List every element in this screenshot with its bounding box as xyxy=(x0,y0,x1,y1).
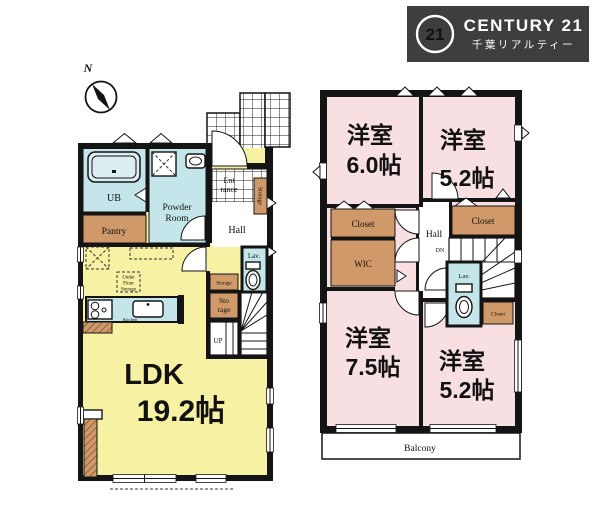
closet-left-label: Closet xyxy=(351,219,375,229)
hall-1f-label: Hall xyxy=(228,225,245,236)
floorplan-second-floor: 洋室 6.0帖 洋室 5.2帖 Closet WIC Hall DN Close… xyxy=(308,78,548,470)
floorplan-canvas: 21 CENTURY 21 千葉リアルティー N xyxy=(0,0,600,524)
kitchen-label: Kitchen xyxy=(123,317,138,322)
entrance-label-2: rance xyxy=(220,185,238,194)
century21-logo: 21 CENTURY 21 千葉リアルティー xyxy=(407,6,589,62)
under-floor-label-3: Storage xyxy=(121,288,137,293)
room-sw-size: 7.5帖 xyxy=(346,354,401,380)
room-ne-label: 洋室 xyxy=(440,127,486,153)
logo-brand-text: CENTURY 21 xyxy=(464,17,584,34)
storage-strip-label: Storage xyxy=(216,282,232,287)
balcony-label: Balcony xyxy=(404,444,436,454)
room-nw-size: 6.0帖 xyxy=(347,152,402,178)
storage-room-label-1: Sto xyxy=(219,296,229,305)
wic-label: WIC xyxy=(354,259,372,269)
closet-small-label: Closet xyxy=(491,312,506,318)
kitchen-counter: Kitchen xyxy=(86,297,178,322)
closet-right-label: Closet xyxy=(471,216,495,226)
entrance-label-1: Ent xyxy=(223,176,235,185)
hall-2f-label: Hall xyxy=(426,230,443,240)
under-floor-label-2: Floor xyxy=(123,282,134,287)
storage-side-label: Storage xyxy=(257,187,263,206)
under-floor-label-1: Under xyxy=(122,276,135,281)
powder-label-2: Room xyxy=(165,214,189,224)
room-se-size: 5.2帖 xyxy=(440,377,495,403)
room-ne-size: 5.2帖 xyxy=(440,165,495,191)
logo-subtitle-text: 千葉リアルティー xyxy=(464,37,584,52)
up-label: UP xyxy=(214,337,223,345)
room-nw-label: 洋室 xyxy=(347,122,393,148)
washer-pan-icon xyxy=(152,152,176,176)
c21-seal-icon: 21 xyxy=(413,12,457,56)
ldk-label: LDK xyxy=(124,359,184,391)
dn-label: DN xyxy=(436,248,445,254)
ldk-size-label: 19.2帖 xyxy=(137,395,225,428)
toilet-1f-icon xyxy=(246,262,260,290)
c21-seal-number: 21 xyxy=(425,25,444,44)
powder-sink-icon xyxy=(186,154,205,168)
floorplan-first-floor: Kitchen Under Floor Storage xyxy=(70,85,298,497)
ub-label: UB xyxy=(107,193,121,204)
bathtub-icon xyxy=(88,152,140,182)
counter-end xyxy=(83,322,112,333)
pantry-label: Pantry xyxy=(102,227,127,237)
compass-north-label: N xyxy=(83,61,94,75)
powder-label-1: Powder xyxy=(162,203,192,213)
lav-2f-label: Lav. xyxy=(458,273,470,280)
room-sw-label: 洋室 xyxy=(345,325,391,351)
room-se-label: 洋室 xyxy=(439,348,485,374)
storage-room-label-2: rage xyxy=(218,305,232,314)
toilet-2f-icon xyxy=(456,284,472,318)
lav-1f-label: Lav. xyxy=(248,252,260,260)
